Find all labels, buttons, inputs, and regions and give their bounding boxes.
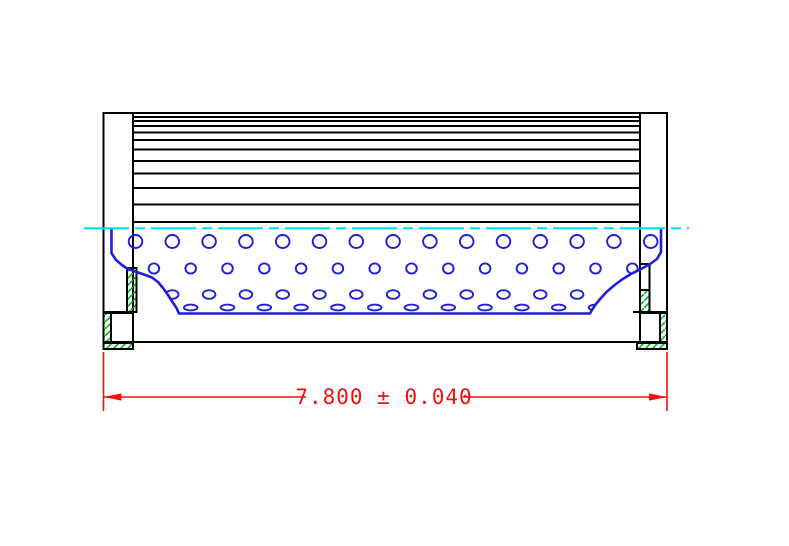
pleated-media-lines xyxy=(133,113,640,222)
right-cap-seam-hatch xyxy=(640,290,650,312)
filter-element-section-drawing: 7.800 ± 0.040 xyxy=(0,0,789,546)
left-cap-foot-hatch xyxy=(104,313,112,342)
right-cap-bottom-hatch xyxy=(637,343,667,349)
left-cap-foot xyxy=(111,313,133,342)
left-cap-seam-hatch xyxy=(127,268,137,312)
dimension-arrow-left xyxy=(104,393,122,400)
left-cap-bottom-hatch xyxy=(104,343,134,349)
left-end-cap xyxy=(104,113,138,349)
right-cap-foot xyxy=(640,313,660,342)
perforated-core xyxy=(112,229,662,314)
drawing-sheet: 7.800 ± 0.040 xyxy=(0,0,789,546)
dimension-text: 7.800 ± 0.040 xyxy=(295,385,472,409)
dimension-arrow-right xyxy=(649,393,667,400)
perforation-holes xyxy=(129,235,658,310)
overall-length-dimension: 7.800 ± 0.040 xyxy=(104,352,668,411)
right-cap-foot-hatch xyxy=(660,313,667,342)
